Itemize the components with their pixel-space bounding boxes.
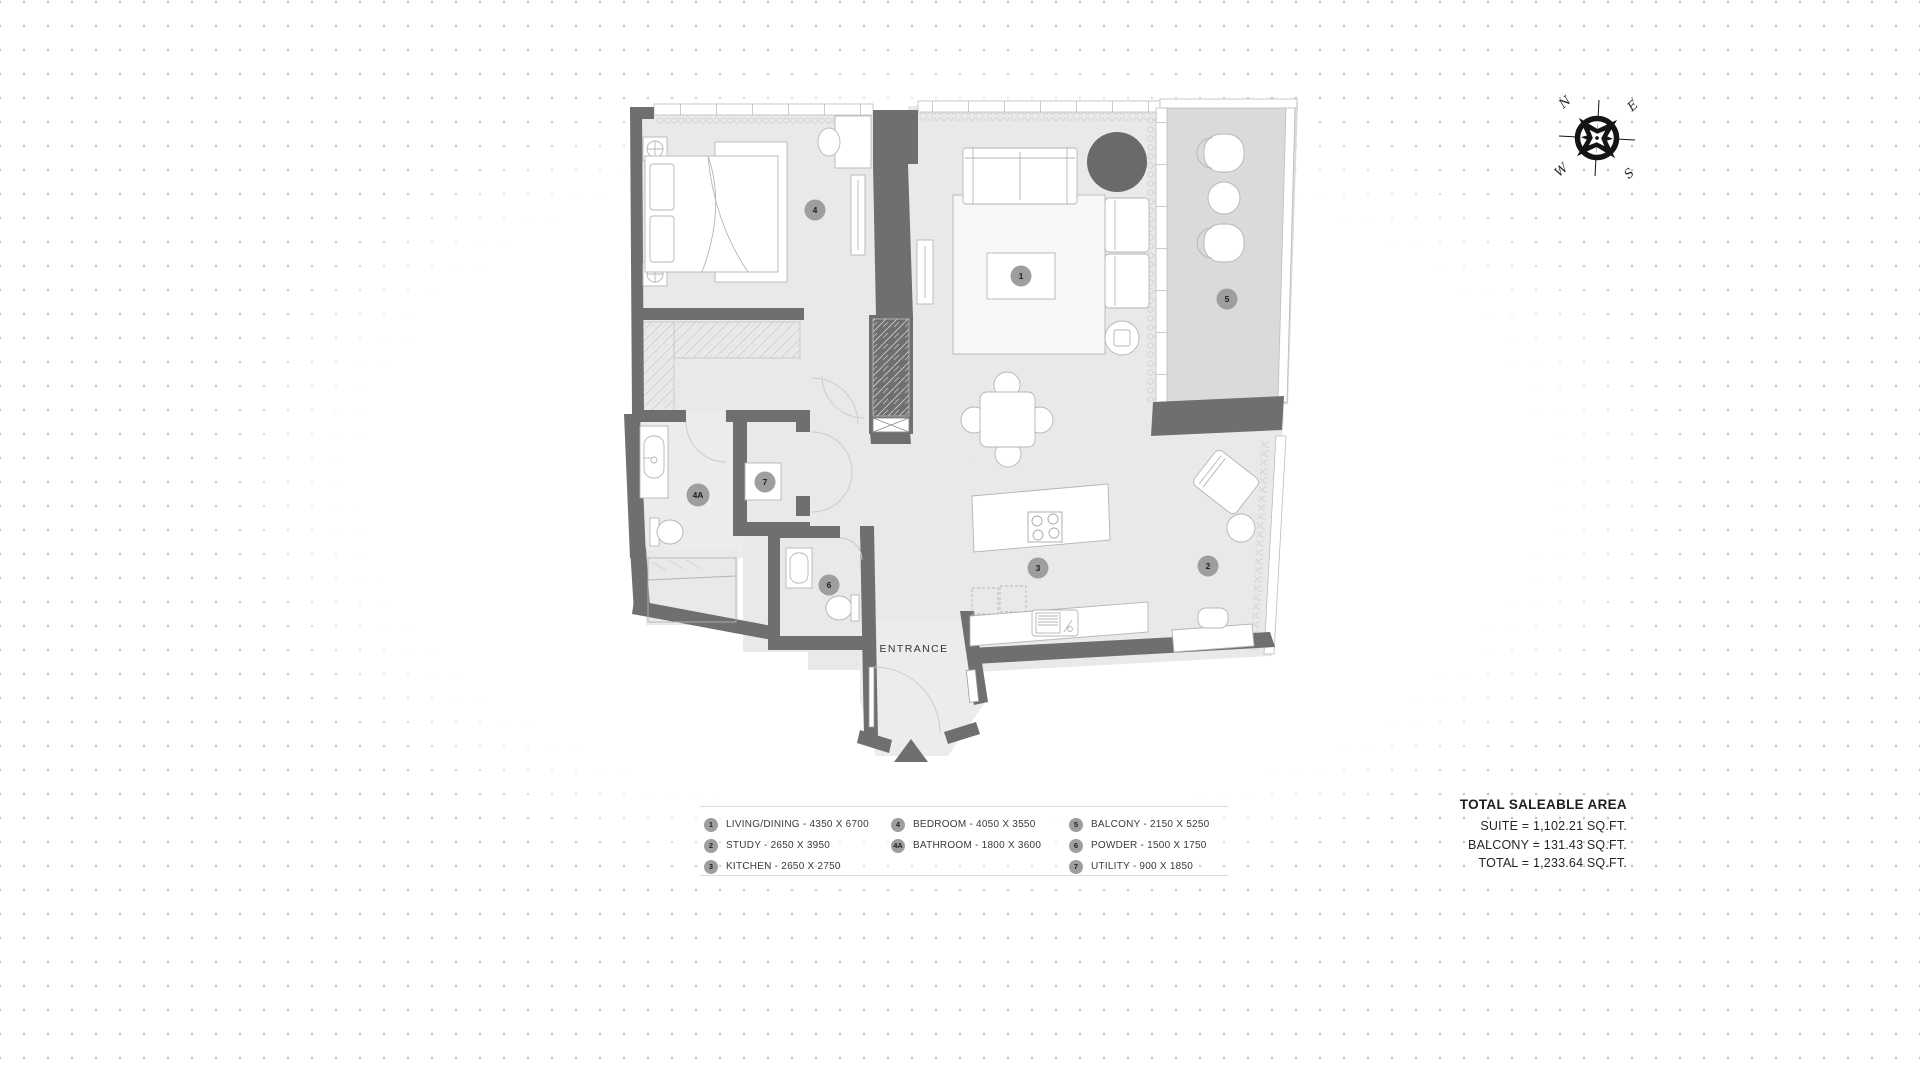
- legend-label: BEDROOM - 4050 X 3550: [913, 819, 1036, 830]
- entrance-door-leaf: [869, 667, 874, 727]
- entrance-label: ENTRANCE: [880, 643, 949, 655]
- area-suite: SUITE = 1,102.21 SQ.FT.: [1337, 817, 1627, 836]
- svg-text:2: 2: [1206, 561, 1211, 571]
- study-side-table: [1227, 514, 1255, 542]
- legend-badge: 4A: [891, 839, 905, 853]
- compass-rose: N E S W: [1522, 78, 1672, 198]
- toilet-bowl: [657, 520, 683, 544]
- compass-w: W: [1551, 159, 1571, 180]
- legend: 1 LIVING/DINING - 4350 X 6700 2 STUDY - …: [700, 806, 1228, 876]
- svg-text:3: 3: [1036, 563, 1041, 573]
- area-summary-title: TOTAL SALEABLE AREA: [1337, 797, 1627, 812]
- legend-label: KITCHEN - 2650 X 2750: [726, 861, 841, 872]
- compass-star: [1559, 100, 1635, 176]
- svg-text:4: 4: [813, 205, 818, 215]
- compass-s: S: [1621, 165, 1637, 182]
- svg-text:6: 6: [827, 580, 832, 590]
- balcony-table: [1208, 182, 1240, 214]
- legend-item: 6 POWDER - 1500 X 1750: [1069, 835, 1209, 856]
- legend-item: 7 UTILITY - 900 X 1850: [1069, 856, 1209, 877]
- pillow: [650, 216, 674, 262]
- legend-label: LIVING/DINING - 4350 X 6700: [726, 819, 869, 830]
- area-total: TOTAL = 1,233.64 SQ.FT.: [1337, 854, 1627, 873]
- hall-closet: [873, 319, 909, 432]
- legend-badge: 7: [1069, 860, 1083, 874]
- legend-label: UTILITY - 900 X 1850: [1091, 861, 1193, 872]
- svg-text:7: 7: [763, 477, 768, 487]
- badge-study: 2: [1198, 556, 1219, 577]
- armchair: [1105, 254, 1149, 308]
- legend-label: BATHROOM - 1800 X 3600: [913, 840, 1041, 851]
- area-balcony: BALCONY = 131.43 SQ.FT.: [1337, 836, 1627, 855]
- legend-item: 3 KITCHEN - 2650 X 2750: [704, 856, 869, 877]
- badge-bedroom: 4: [805, 200, 826, 221]
- legend-item: 2 STUDY - 2650 X 3950: [704, 835, 869, 856]
- legend-badge: 4: [891, 818, 905, 832]
- legend-column-2: 4 BEDROOM - 4050 X 3550 4A BATHROOM - 18…: [891, 814, 1041, 856]
- armchair: [1105, 198, 1149, 252]
- legend-label: POWDER - 1500 X 1750: [1091, 840, 1207, 851]
- badge-bathroom: 4A: [687, 484, 710, 507]
- legend-item: 4 BEDROOM - 4050 X 3550: [891, 814, 1041, 835]
- area-summary: TOTAL SALEABLE AREA SUITE = 1,102.21 SQ.…: [1337, 797, 1627, 873]
- pillow: [650, 164, 674, 210]
- badge-utility: 7: [755, 472, 776, 493]
- badge-kitchen: 3: [1028, 558, 1049, 579]
- legend-column-1: 1 LIVING/DINING - 4350 X 6700 2 STUDY - …: [704, 814, 869, 877]
- svg-text:4A: 4A: [693, 490, 704, 500]
- svg-text:5: 5: [1225, 294, 1230, 304]
- legend-badge: 5: [1069, 818, 1083, 832]
- badge-living: 1: [1011, 266, 1032, 287]
- legend-label: BALCONY - 2150 X 5250: [1091, 819, 1209, 830]
- badge-balcony: 5: [1217, 289, 1238, 310]
- legend-item: 1 LIVING/DINING - 4350 X 6700: [704, 814, 869, 835]
- compass-n: N: [1555, 92, 1575, 112]
- legend-badge: 6: [1069, 839, 1083, 853]
- floor-plan-drawing: ENTRANCE 1 2 3 4 4A 5 6 7: [608, 80, 1308, 780]
- svg-text:1: 1: [1019, 271, 1024, 281]
- legend-label: STUDY - 2650 X 3950: [726, 840, 830, 851]
- round-dark-table: [1087, 132, 1147, 192]
- balcony-chair: [1204, 134, 1244, 172]
- balcony-chair: [1204, 224, 1244, 262]
- compass-e: E: [1623, 97, 1641, 115]
- legend-badge: 1: [704, 818, 718, 832]
- legend-column-3: 5 BALCONY - 2150 X 5250 6 POWDER - 1500 …: [1069, 814, 1209, 877]
- toilet-bowl: [826, 596, 852, 620]
- desk-chair: [818, 128, 840, 156]
- kitchen-sink: [1032, 610, 1078, 636]
- toilet-tank: [851, 595, 859, 621]
- legend-item: 4A BATHROOM - 1800 X 3600: [891, 835, 1041, 856]
- floor-plan: ENTRANCE 1 2 3 4 4A 5 6 7: [608, 80, 1308, 780]
- legend-badge: 3: [704, 860, 718, 874]
- dining-table: [980, 392, 1035, 447]
- study-chair: [1198, 608, 1228, 628]
- badge-powder: 6: [819, 575, 840, 596]
- legend-item: 5 BALCONY - 2150 X 5250: [1069, 814, 1209, 835]
- legend-badge: 2: [704, 839, 718, 853]
